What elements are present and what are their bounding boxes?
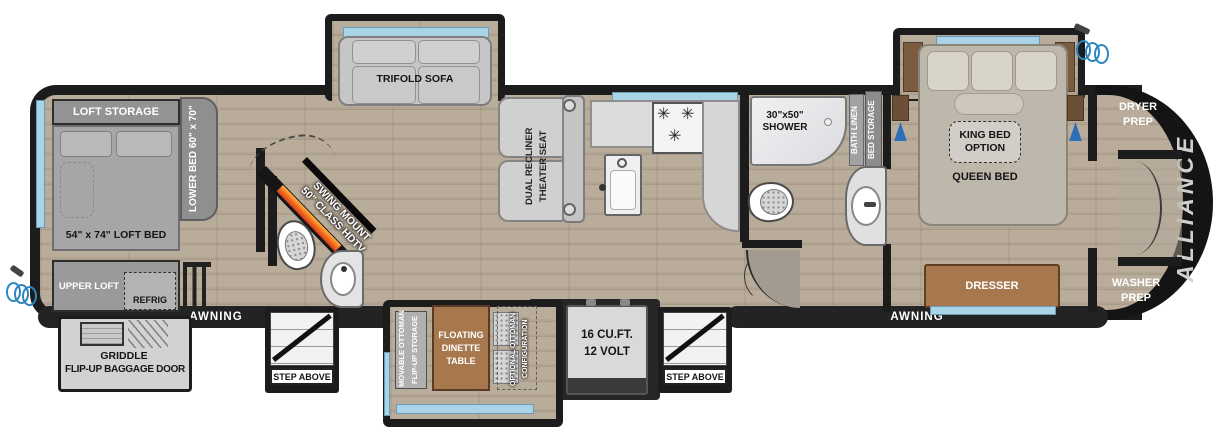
bath-door-header — [742, 240, 802, 248]
bed-bolster — [954, 93, 1024, 115]
hose-nozzle — [1073, 23, 1090, 35]
utility-hose-icon — [1070, 22, 1116, 66]
bath-wall-right-upper — [883, 91, 891, 169]
queen-bed-label: QUEEN BED — [943, 170, 1027, 184]
bed-pillow — [60, 131, 112, 157]
washer-prep-line1: WASHER — [1112, 276, 1160, 291]
vanity-faucet — [864, 202, 876, 207]
island-handle-dot — [599, 184, 606, 191]
kitchen-counter-side — [702, 100, 740, 232]
dresser-label: DRESSER — [965, 280, 1018, 292]
sofa-back-cushion — [418, 40, 480, 64]
griddle-label-line1: GRIDDLE — [60, 350, 188, 362]
fridge-label-line2: 12 VOLT — [584, 344, 630, 361]
bed-pillow — [1015, 51, 1057, 91]
shower-label-line2: SHOWER — [763, 122, 808, 134]
nightstand — [892, 95, 909, 121]
burner-icon: ✳ — [657, 104, 670, 124]
ottoman-label2: FLIP-UP STORAGE — [410, 313, 423, 387]
rv-floorplan: ALLIANCE AWNING AWNING TRIFOLD SOFA LOFT… — [0, 0, 1230, 437]
upper-loft-label: UPPER LOFT — [56, 260, 122, 312]
washer-prep-line2: PREP — [1121, 291, 1151, 306]
loft-storage-label: LOFT STORAGE — [73, 106, 159, 118]
ottoman-label1: MOVABLE OTTOMAN — [397, 313, 410, 387]
burner-icon: ✳ — [668, 126, 681, 146]
shower-drain — [824, 118, 832, 126]
dinette-label-line1: FLOATING — [438, 329, 483, 342]
sofa-label: TRIFOLD SOFA — [338, 72, 492, 86]
cupholder — [563, 99, 576, 112]
step-left-labelbox: STEP ABOVE — [270, 368, 334, 385]
toilet-lid — [760, 189, 788, 215]
refrig-label: REFRIG — [124, 292, 176, 308]
bed-storage-label: BED STORAGE — [867, 94, 880, 166]
king-option-line2: OPTION — [965, 142, 1005, 155]
optional-ottoman-label1: OPTIONAL OTTOMAN — [510, 310, 522, 388]
bath-wall-left — [740, 92, 749, 242]
shower-label-line1: 30"x50" — [766, 110, 803, 122]
dinette-side-window — [384, 352, 390, 416]
loft-storage: LOFT STORAGE — [52, 99, 180, 125]
nightstand — [1067, 95, 1084, 121]
closet-wall-top — [1118, 150, 1182, 159]
optional-ottoman-label2: CONFIGURATION — [522, 310, 534, 388]
dresser-window — [930, 306, 1056, 315]
fridge-hinge — [586, 299, 596, 306]
washer-prep-label: WASHER PREP — [1090, 274, 1182, 308]
theater-seat-label2: THEATER SEAT — [538, 122, 552, 210]
dryer-prep-line2: PREP — [1123, 115, 1153, 130]
island-faucet — [617, 158, 627, 168]
closet-wall-bottom — [1118, 257, 1182, 266]
bed-pillow — [927, 51, 969, 91]
loft-ladder-dashes — [128, 320, 168, 348]
cupholder — [563, 203, 576, 216]
dinette-label-line3: TABLE — [446, 355, 475, 368]
step-left-label: STEP ABOVE — [273, 372, 331, 382]
fridge-label-line1: 16 CU.FT. — [581, 327, 633, 344]
dinette-label-line2: DINETTE — [442, 342, 481, 355]
faucet-dot — [341, 266, 347, 272]
utility-hose-icon — [4, 266, 46, 308]
step-right-label: STEP ABOVE — [666, 372, 724, 382]
king-bed-option: KING BED OPTION — [949, 121, 1021, 163]
bed-pillow — [971, 51, 1013, 91]
fridge-label: 16 CU.FT. 12 VOLT — [566, 320, 648, 368]
king-option-line1: KING BED — [959, 129, 1010, 142]
theater-seat-label1: DUAL RECLINER — [524, 120, 538, 212]
bed-dashed-outline — [60, 162, 94, 218]
fridge-hinge — [620, 299, 630, 306]
bath-wall-right-lower — [883, 244, 891, 312]
dinette-window — [396, 404, 534, 414]
lower-bed-label: LOWER BED 60" x 70" — [188, 103, 210, 215]
loft-stairs — [183, 262, 211, 310]
awning-left-label: AWNING — [189, 311, 242, 323]
griddle-label-line2: FLIP-UP BAGGAGE DOOR — [58, 363, 192, 375]
rear-window — [36, 100, 45, 228]
sofa-back-cushion — [352, 40, 416, 64]
island-sink — [610, 170, 636, 210]
loft-bed-label: 54" x 74" LOFT BED — [54, 228, 178, 242]
floating-dinette-table: FLOATING DINETTE TABLE — [432, 305, 490, 391]
burner-icon: ✳ — [681, 104, 694, 124]
dresser: DRESSER — [924, 264, 1060, 308]
bed-pillow — [116, 131, 172, 157]
dryer-prep-label: DRYER PREP — [1096, 98, 1180, 132]
fridge-base — [568, 378, 646, 393]
griddle-icon — [80, 322, 124, 346]
dryer-prep-line1: DRYER — [1119, 100, 1157, 115]
shower-label: 30"x50" SHOWER — [754, 110, 816, 134]
bath-linen-label: BATH LINEN — [850, 97, 863, 163]
hose-nozzle — [10, 265, 25, 278]
step-right-labelbox: STEP ABOVE — [663, 368, 727, 385]
